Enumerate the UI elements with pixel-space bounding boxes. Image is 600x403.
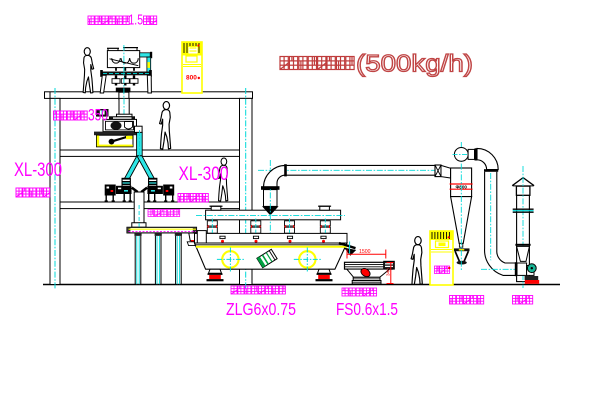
svg-text:XL-300: XL-300	[179, 164, 229, 185]
svg-text:350: 350	[88, 107, 108, 125]
svg-text:800: 800	[186, 75, 197, 82]
svg-text:FS0.6x1.5: FS0.6x1.5	[336, 299, 398, 319]
svg-text:(500kg/h): (500kg/h)	[356, 51, 473, 78]
svg-text:340: 340	[385, 268, 390, 276]
svg-text:1.5: 1.5	[129, 12, 144, 29]
svg-text:1500: 1500	[359, 249, 371, 255]
svg-text:XL-300: XL-300	[14, 160, 62, 181]
svg-text:ZLG6x0.75: ZLG6x0.75	[226, 299, 296, 319]
